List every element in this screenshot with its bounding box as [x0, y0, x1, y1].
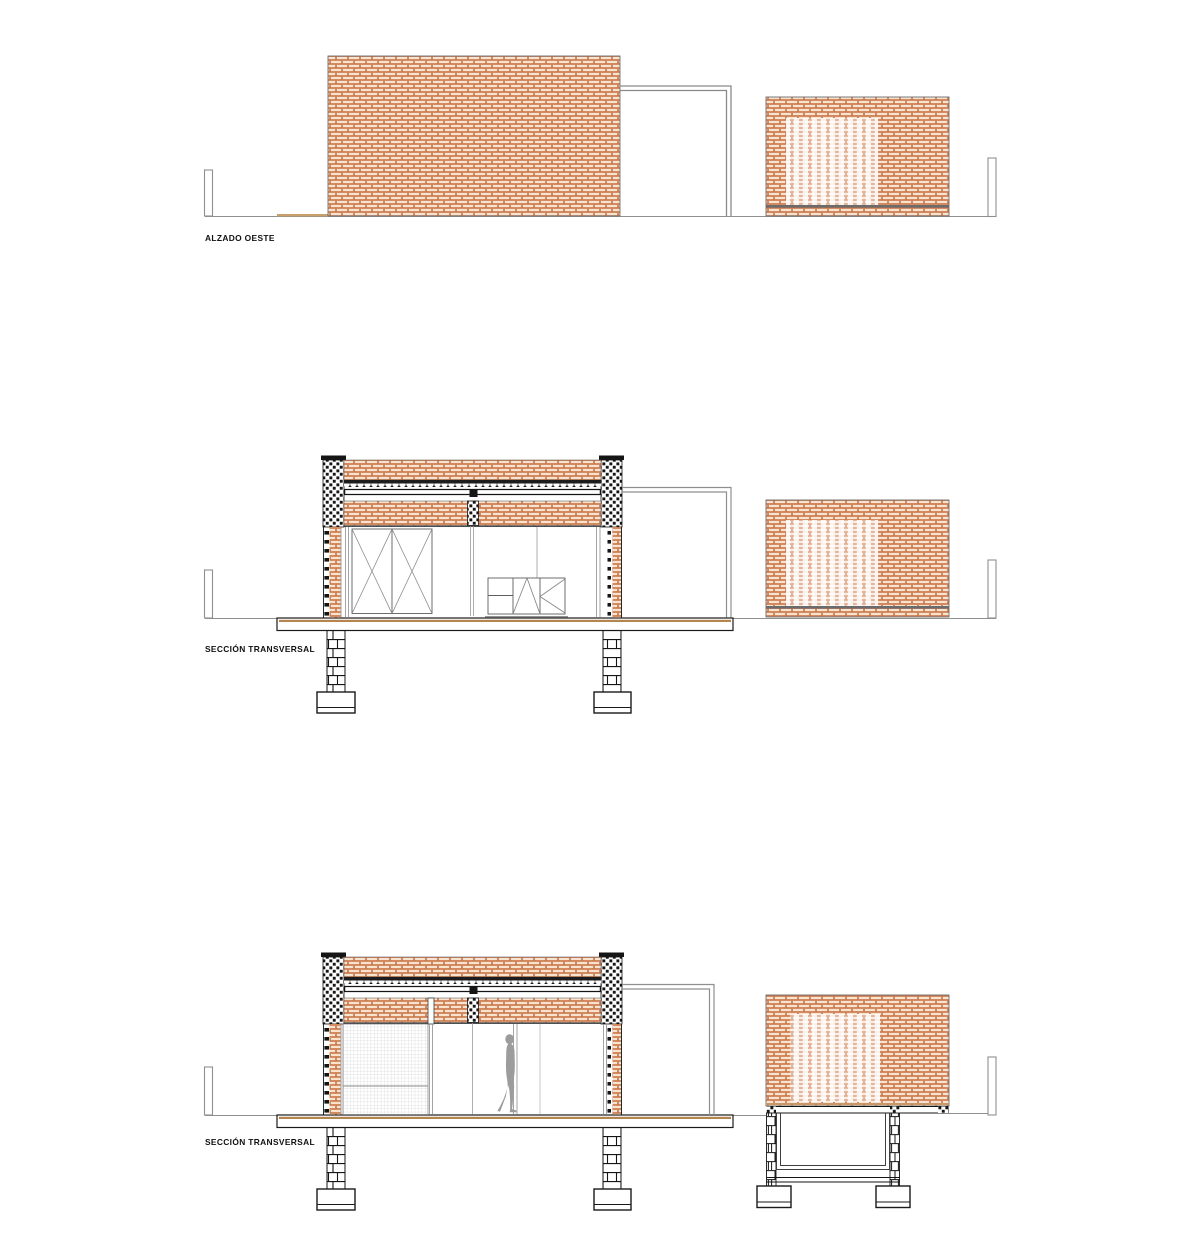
seccion-transversal-1-drawing: SECCIÓN TRANSVERSAL [205, 456, 997, 714]
water-tank-outer [777, 1113, 890, 1170]
pergola-frame [622, 488, 731, 618]
large-brick-wall [328, 56, 620, 216]
footing-left [757, 1186, 791, 1208]
foundation-pier-right [890, 1113, 900, 1186]
human-figure-head [505, 1034, 514, 1044]
x-braced-panels [352, 529, 432, 614]
water-tank-inner [781, 1113, 886, 1166]
boundary-post-left [205, 170, 213, 216]
pavement-strip [277, 214, 331, 216]
brick-lattice-wall [766, 995, 949, 1106]
glazing-lines [430, 1023, 607, 1114]
alzado-oeste-drawing: ALZADO OESTE [205, 56, 997, 243]
drawing-label-seccion-1: SECCIÓN TRANSVERSAL [205, 643, 315, 654]
foundation-pier-left [767, 1113, 777, 1186]
drawing-canvas: ALZADO OESTE [0, 0, 1200, 1252]
footing-right [876, 1186, 910, 1208]
pergola-frame [622, 985, 714, 1116]
brick-lattice-wall [766, 97, 949, 216]
right-volume-foundation [757, 1113, 910, 1208]
lattice-bars [790, 1014, 880, 1102]
opening-frame [620, 86, 731, 216]
drawing-sheet: ALZADO OESTE [0, 0, 1200, 1252]
lattice-bars [786, 520, 878, 606]
glazing-lines-right [597, 527, 601, 617]
brick-lattice-wall [766, 500, 949, 617]
wall-base-band [766, 205, 949, 208]
lattice-bars [786, 118, 878, 206]
casework [485, 578, 568, 617]
wall-base-band [766, 1103, 949, 1105]
casework-a-brace [513, 578, 540, 614]
seccion-transversal-2-drawing: SECCIÓN TRANSVERSAL [205, 953, 997, 1211]
wall-base-band [766, 606, 949, 609]
boundary-post-right [988, 158, 996, 217]
drawing-label-alzado-oeste: ALZADO OESTE [205, 233, 275, 243]
mesh-screen [343, 1024, 428, 1115]
drawing-label-seccion-2: SECCIÓN TRANSVERSAL [205, 1136, 315, 1147]
casework-k-brace [540, 579, 565, 613]
mullion-pier [428, 998, 434, 1024]
center-column-line [471, 526, 474, 616]
glazing-track-left [346, 527, 349, 617]
right-volume-slab [767, 1107, 949, 1114]
